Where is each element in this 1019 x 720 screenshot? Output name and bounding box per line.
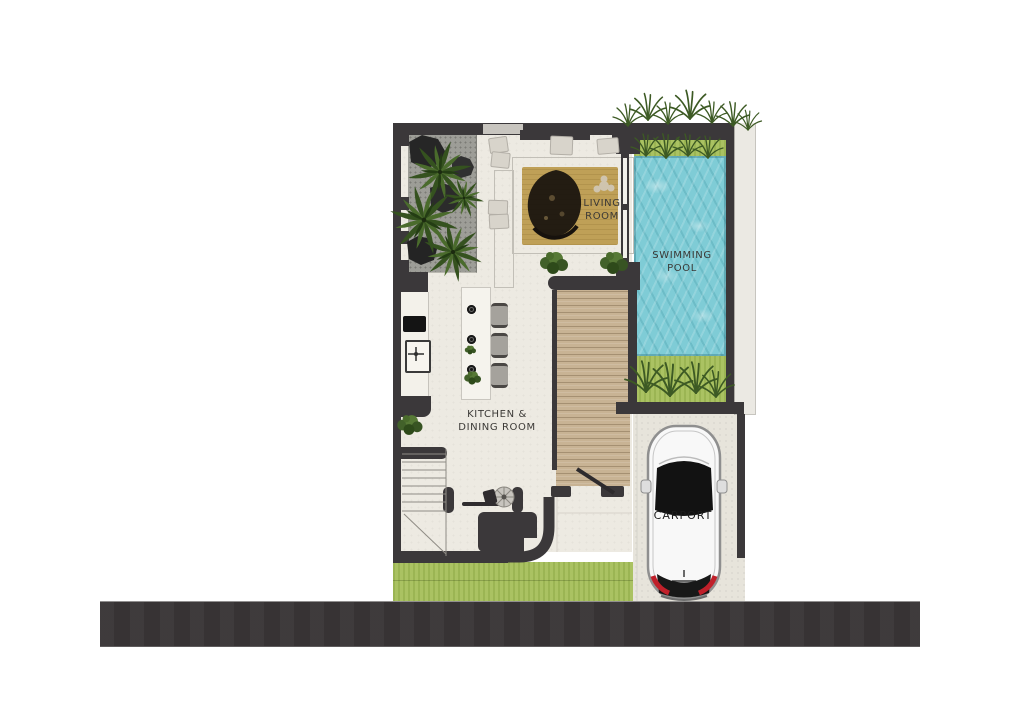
deck-west-wall (552, 290, 557, 470)
wall-pilaster-3 (400, 231, 409, 244)
pool-north-wall (612, 123, 734, 140)
floor-cushion (550, 136, 574, 156)
pool-planter-top (634, 140, 726, 156)
wall-bottom (393, 551, 508, 563)
living-room-label-line1: LIVING (570, 197, 634, 210)
top-wall-glass-panel (483, 124, 523, 134)
pool-east-wall (726, 123, 734, 414)
bench-arm-left (443, 487, 454, 513)
bench-arm-right (512, 487, 523, 513)
side-walkway (734, 123, 756, 415)
carport-driveway (633, 414, 745, 601)
kitchen-island (461, 287, 491, 400)
storage-notch (524, 538, 540, 552)
swimming-pool-label-line1: SWIMMING (646, 249, 718, 262)
floor-cushion (490, 151, 511, 169)
kitchen-counter-end-top (398, 272, 428, 292)
floor-plan-canvas: LIVING ROOM SWIMMING POOL KITCHEN & DINI… (0, 0, 1019, 720)
swimming-pool-label-line2: POOL (646, 262, 718, 275)
bench-seat (462, 502, 500, 506)
bar-stool-3 (491, 363, 508, 388)
front-lawn (393, 562, 633, 601)
deck-east-wall (628, 283, 637, 414)
wood-deck (556, 287, 630, 486)
deck-threshold-left (551, 486, 571, 497)
floor-cushion (596, 137, 619, 155)
wall-pilaster-1 (400, 133, 409, 146)
kitchen-dining-label-line1: KITCHEN & (445, 408, 549, 421)
living-room-south-wall (548, 276, 640, 290)
island-burner-1 (467, 305, 476, 314)
island-burner-2 (467, 335, 476, 344)
pool-south-wall (616, 402, 744, 414)
pool-planter-bottom (634, 356, 726, 402)
stair-head-wall (398, 447, 447, 459)
wall-pilaster-2 (400, 197, 409, 210)
kitchen-dining-label: KITCHEN & DINING ROOM (445, 408, 549, 434)
road (100, 601, 920, 647)
gravel-garden-bed (408, 135, 477, 273)
kitchen-counter-end-bottom (398, 396, 431, 417)
bar-stool-2 (491, 333, 508, 358)
carport-label: CARPORT (643, 509, 723, 522)
wall-left (393, 123, 401, 563)
carport-east-wall (737, 414, 745, 558)
kitchen-sink (405, 340, 431, 373)
living-room-label: LIVING ROOM (570, 197, 634, 223)
lawn-joint-line (393, 580, 633, 581)
deck-threshold-right (601, 486, 624, 497)
kitchen-dining-label-line2: DINING ROOM (445, 421, 549, 434)
cooktop (403, 316, 426, 332)
bar-stool-1 (491, 303, 508, 328)
living-room-label-line2: ROOM (570, 210, 634, 223)
island-burner-3 (467, 365, 476, 374)
floor-cushion (489, 213, 510, 229)
swimming-pool-label: SWIMMING POOL (646, 249, 718, 275)
